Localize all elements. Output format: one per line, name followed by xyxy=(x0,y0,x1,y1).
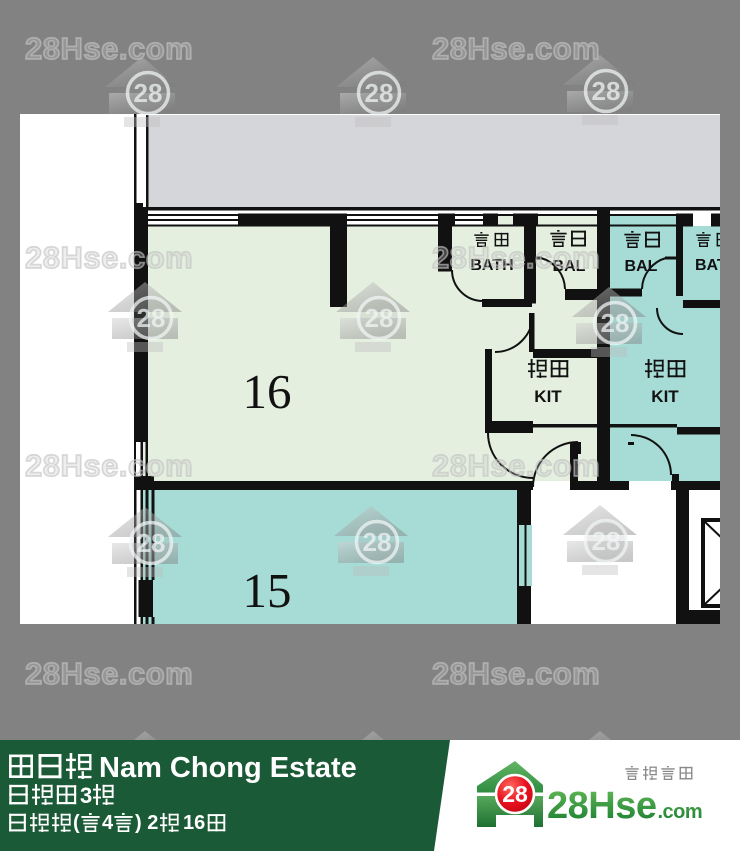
svg-text:KIT: KIT xyxy=(651,387,679,406)
svg-text:16: 16 xyxy=(183,812,205,834)
svg-text:4: 4 xyxy=(102,812,114,834)
svg-text:15: 15 xyxy=(243,563,292,618)
svg-text:16: 16 xyxy=(243,364,292,419)
svg-text:KIT: KIT xyxy=(534,387,562,406)
svg-text:(: ( xyxy=(73,812,80,834)
svg-text:) 2: ) 2 xyxy=(135,812,158,834)
svg-text:28: 28 xyxy=(502,781,528,807)
svg-text:Nam Chong Estate: Nam Chong Estate xyxy=(99,752,357,784)
svg-text:3: 3 xyxy=(80,783,92,808)
svg-text:BAL: BAL xyxy=(625,258,658,275)
